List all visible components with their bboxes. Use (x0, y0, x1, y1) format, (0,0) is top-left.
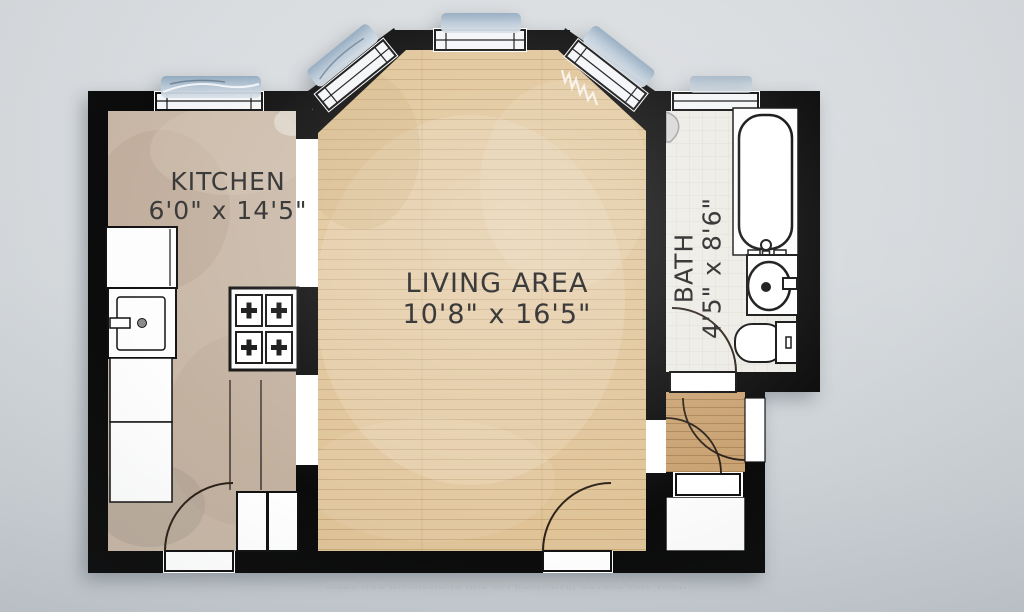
glass-bath-window (690, 76, 752, 93)
kitchen-dimensions: 6'0" x 14'5" (118, 196, 338, 225)
toilet (735, 322, 797, 363)
bath-label: BATH 4'5" x 8'6" (671, 171, 729, 366)
kitchen-counter-mid (110, 358, 172, 422)
sink-drain (761, 282, 771, 292)
bath-name: BATH (671, 171, 699, 366)
living-area-name: LIVING AREA (377, 268, 617, 299)
disclaimer-text: SIZES AND DIMENSIONS ARE APPROXIMATE, AC… (325, 581, 687, 592)
kitchen-name: KITCHEN (118, 167, 338, 196)
kitchen-sink (108, 288, 176, 358)
bathroom-sink-vanity (747, 255, 798, 315)
kitchen-label: KITCHEN 6'0" x 14'5" (118, 167, 338, 225)
wall-left (88, 91, 108, 573)
opening-entry-door (745, 398, 765, 462)
kitchen-counter-low (110, 422, 172, 502)
wall-kitchen-living-c (296, 465, 318, 551)
living-area-dimensions: 10'8" x 16'5" (377, 299, 617, 330)
bathtub (733, 108, 798, 258)
kitchen-entry-door-leaf (165, 551, 233, 571)
tub-faucet (761, 240, 771, 250)
stove (230, 288, 298, 370)
opening-kitchen-living-lower (296, 375, 318, 465)
living-area-label: LIVING AREA 10'8" x 16'5" (377, 268, 617, 330)
vestibule-floor (666, 392, 745, 472)
wall-bath-right (796, 91, 820, 392)
floor-plan-canvas: KITCHEN 6'0" x 14'5" LIVING AREA 10'8" x… (0, 0, 1024, 612)
toilet-button (786, 337, 791, 348)
kitchen-counter-top (106, 227, 177, 288)
sink-faucet-handle (110, 318, 130, 328)
bath-door-leaf (670, 372, 736, 392)
sink-faucet (783, 278, 797, 289)
living-entry-door-leaf (543, 551, 611, 571)
closet-door-leaf (676, 474, 740, 495)
closet (666, 497, 745, 551)
bath-dimensions: 4'5" x 8'6" (699, 171, 727, 366)
ac-unit-bay-top (441, 13, 521, 33)
opening-living-vestibule (646, 420, 666, 473)
wall-living-bath-a (646, 91, 666, 420)
double-cabinet (237, 492, 298, 551)
